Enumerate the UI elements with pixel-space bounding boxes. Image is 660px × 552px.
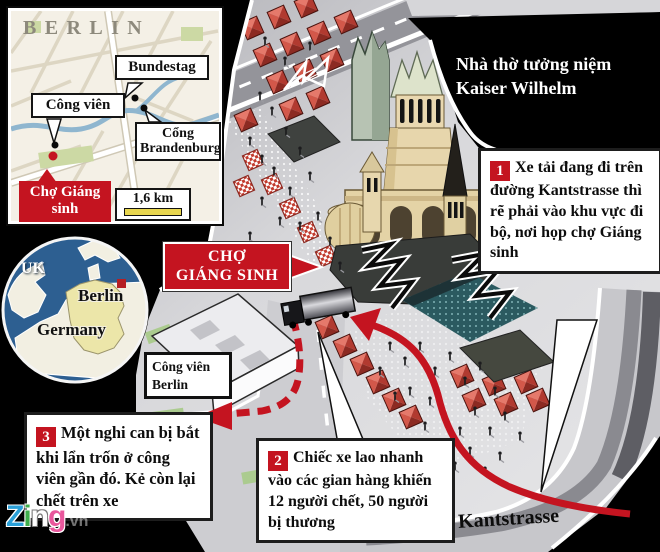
berlin-inset-map: BERLIN Bundestag Công viên Cổng Brandenb… [8,8,222,224]
inset-title: BERLIN [23,17,150,40]
locator-map [1,236,149,384]
infographic-berlin-attack: BERLIN Bundestag Công viên Cổng Brandenb… [0,0,660,552]
label-park: Công viên [31,93,125,118]
callout-1: 1Xe tải đang đi trên đường Kantstrasse t… [478,148,660,274]
park-label-box: Công viên Berlin [144,352,232,399]
label-brandenburg-gate: Cổng Brandenburg [135,122,221,161]
church-caption: Nhà thờ tưởng niệm Kaiser Wilhelm [456,52,660,101]
watermark-letter: Z [6,500,23,533]
label-germany: Germany [37,320,106,340]
zing-watermark: Zing.vn [6,500,88,534]
scale-bar [124,208,182,216]
market-flag: CHỢ GIÁNG SINH [163,242,291,291]
label-bundestag: Bundestag [115,55,209,80]
label-christmas-market: Chợ Giáng sinh [19,181,111,222]
callout-3-number: 3 [36,427,56,447]
label-berlin: Berlin [78,286,123,306]
scale-indicator: 1,6 km [115,188,191,221]
label-uk: UK [21,260,45,278]
callout-1-number: 1 [490,161,510,181]
callout-2: 2Chiếc xe lao nhanh vào các gian hàng kh… [256,438,455,543]
callout-2-number: 2 [268,451,288,471]
